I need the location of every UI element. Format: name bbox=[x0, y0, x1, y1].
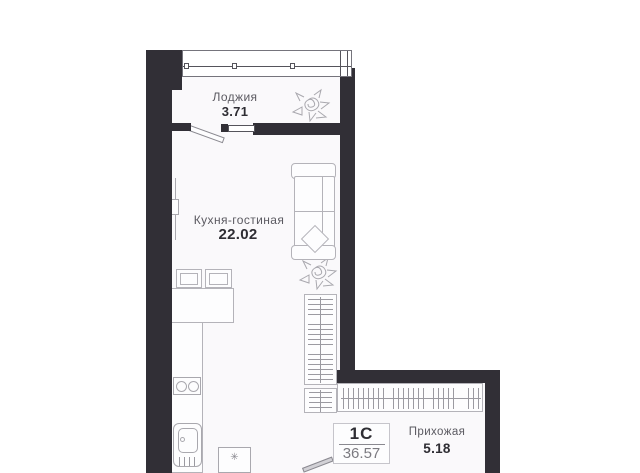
wall-right-bottom bbox=[485, 370, 500, 473]
hanger-rail bbox=[341, 398, 481, 399]
wardrobe-hallway bbox=[337, 383, 483, 412]
room-area-kitchen: 22.02 bbox=[218, 226, 257, 243]
hanger-rail bbox=[320, 390, 321, 412]
glazing-line bbox=[183, 66, 351, 67]
floor-plan: ✳ Лоджия 3.71 Кухня-гостиная 22.02 Прихо… bbox=[0, 0, 640, 473]
wardrobe-vertical-lower bbox=[304, 388, 337, 413]
wall-right bbox=[340, 68, 355, 383]
loggia-window bbox=[182, 50, 352, 77]
sink-icon bbox=[173, 423, 202, 467]
fridge-glyph: ✳ bbox=[219, 452, 250, 463]
wall-hallway-top bbox=[337, 370, 500, 383]
fridge-icon: ✳ bbox=[218, 447, 251, 473]
apartment-total-area: 36.57 bbox=[343, 446, 381, 462]
plant-icon bbox=[297, 255, 339, 291]
apartment-type: 1С bbox=[350, 425, 374, 443]
apartment-type-badge: 1С 36.57 bbox=[333, 423, 390, 464]
plant-icon bbox=[291, 87, 331, 123]
wall-left bbox=[146, 52, 172, 473]
room-area-loggia: 3.71 bbox=[222, 104, 249, 119]
cooktop-icon bbox=[173, 377, 201, 395]
kitchen-counter bbox=[170, 288, 234, 323]
room-area-hallway: 5.18 bbox=[423, 441, 450, 456]
partition-window bbox=[228, 125, 255, 132]
bar-stool bbox=[176, 269, 202, 288]
wall-top-left-corner bbox=[146, 50, 182, 90]
room-label-kitchen: Кухня-гостиная bbox=[194, 213, 285, 227]
window-frame-end bbox=[340, 51, 348, 76]
wardrobe-vertical bbox=[304, 294, 337, 385]
room-label-loggia: Лоджия bbox=[213, 90, 258, 104]
bar-stool bbox=[205, 269, 232, 288]
wall-window-pier bbox=[221, 124, 228, 132]
wall-door-stub bbox=[170, 123, 191, 131]
hanger-rail bbox=[320, 297, 321, 383]
room-label-hallway: Прихожая bbox=[409, 426, 466, 438]
wall-loggia-partition bbox=[253, 123, 355, 135]
window-mullion bbox=[232, 63, 237, 69]
window-mullion bbox=[184, 63, 189, 69]
window-mullion bbox=[290, 63, 295, 69]
